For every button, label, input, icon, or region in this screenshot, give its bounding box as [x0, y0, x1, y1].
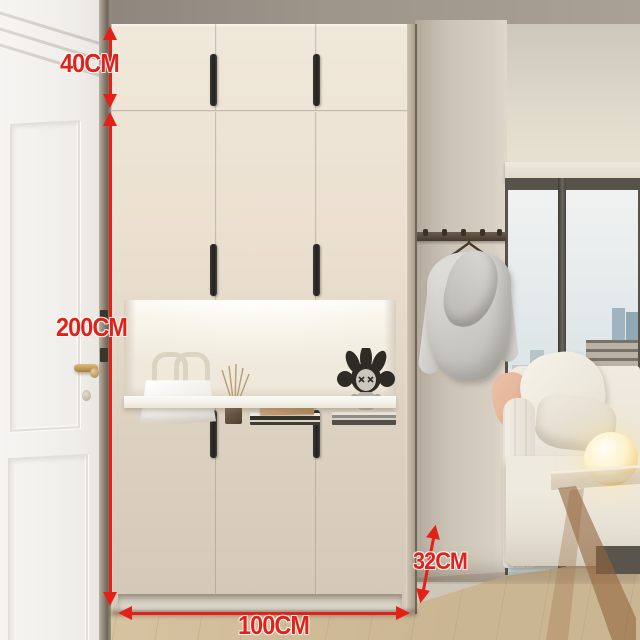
cabinet-side-panel [407, 24, 415, 612]
entry-cabinet [111, 24, 417, 614]
entryway-cabinet-product-photo: 40CM 200CM 32CM 100CM [0, 0, 640, 640]
cabinet-handle [210, 244, 217, 296]
door-panel-lower [8, 454, 88, 640]
arrow-down-icon [103, 94, 117, 108]
display-niche [124, 300, 396, 396]
cabinet-handle [210, 54, 217, 106]
door-hinge [100, 348, 108, 362]
dimension-label-100cm: 100CM [238, 610, 309, 640]
coat-hook [442, 229, 447, 236]
handle-rosette [90, 368, 99, 378]
cabinet-edge [415, 24, 417, 614]
cabinet-plinth [118, 594, 402, 610]
dimension-label-200cm: 200CM [56, 312, 127, 343]
cabinet-handle [313, 54, 320, 106]
diffuser-bottle [225, 407, 242, 424]
door-casing-molding [0, 11, 112, 49]
door-seam [112, 110, 407, 112]
arrow-down-icon [103, 592, 117, 606]
arrow-right-icon [396, 606, 410, 620]
dimension-label-40cm: 40CM [60, 48, 119, 79]
handbag-handle [174, 352, 210, 383]
coat-hook [423, 229, 428, 236]
door-panel-upper [10, 120, 80, 432]
keyhole [82, 390, 91, 401]
coat-hook [480, 229, 485, 236]
coat-hook [497, 229, 502, 236]
dimension-label-32cm: 32CM [413, 548, 467, 576]
coat-hook [461, 229, 466, 236]
arrow-down-icon [413, 588, 429, 604]
cabinet-handle [313, 244, 320, 296]
dimension-line-200cm [109, 122, 112, 596]
shelf-board [124, 396, 396, 408]
acrylic-side-table [540, 470, 640, 640]
